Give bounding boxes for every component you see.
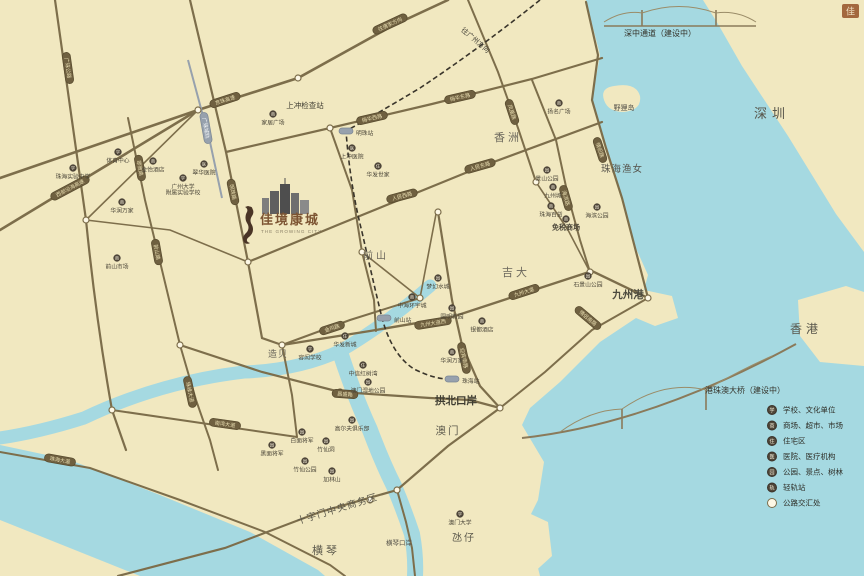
station-pill	[445, 376, 459, 382]
legend-icon-glyph: 园	[769, 470, 774, 476]
area-label: 澳门	[436, 424, 461, 437]
station-pill	[339, 128, 353, 134]
road-junction-marker	[245, 259, 251, 265]
poi-label: 金怡酒店	[141, 166, 164, 174]
area-label: 深圳	[754, 106, 790, 121]
legend-icon-glyph: 住	[769, 438, 774, 445]
poi-label: 家居广场	[261, 119, 284, 127]
poi-label: 中信红树湾	[349, 370, 378, 378]
road-junction-marker	[394, 487, 400, 493]
poi-label: 银都酒店	[470, 326, 493, 334]
poi-icon-glyph: 医	[202, 162, 206, 167]
area-label: 横琴口岸	[386, 538, 413, 547]
road-junction-marker	[497, 405, 503, 411]
road-junction-marker	[195, 107, 201, 113]
area-label: 上冲检查站	[286, 100, 324, 110]
poi-label: 上冲医院	[340, 153, 363, 161]
poi-label: 景山公园	[535, 175, 558, 183]
poi-label: 圆明新园	[440, 313, 463, 321]
poi-label: 竹仙洞	[317, 446, 335, 454]
poi-icon-glyph: 商	[557, 100, 561, 107]
poi-label: 华发世家	[366, 171, 389, 179]
brand-stamp-glyph: 佳	[846, 6, 855, 17]
area-label: 九州港	[611, 288, 644, 301]
poi-label: 高尔夫俱乐部	[335, 425, 370, 433]
road-junction-marker	[83, 217, 89, 223]
area-label: 造贝	[268, 348, 288, 359]
road-junction-marker	[417, 295, 423, 301]
area-label: 港珠澳大桥（建设中）	[705, 385, 785, 395]
poi-icon-glyph: 医	[350, 146, 354, 151]
poi-label: 华发新城	[333, 341, 356, 349]
location-map: 西部沿海高速京珠高速往唐家方向广珠公路明珠路翠微路前山路珠峰大道梅华西路梅华东路…	[0, 0, 864, 576]
poi-label: 容闳学校	[298, 354, 321, 362]
map-canvas: 西部沿海高速京珠高速往唐家方向广珠公路明珠路翠微路前山路珠峰大道梅华西路梅华东路…	[0, 0, 864, 576]
legend-item-label: 公路交汇处	[783, 498, 821, 508]
road-junction-marker	[327, 125, 333, 131]
poi-icon-glyph: 学	[458, 511, 462, 517]
legend-item-label: 医院、医疗机构	[783, 451, 836, 461]
poi-label: 前山市场	[105, 263, 128, 271]
road-junction-marker	[435, 209, 441, 215]
legend-icon-glyph: 医	[769, 455, 774, 461]
poi-label: 九州城	[544, 192, 562, 200]
poi-icon-glyph: 学	[71, 165, 75, 171]
area-label: 香港	[790, 322, 822, 336]
road-junction-marker	[645, 295, 651, 301]
poi-icon-glyph: 商	[115, 255, 119, 262]
legend-item-label: 学校、文化单位	[783, 405, 836, 415]
area-label: 香洲	[494, 131, 522, 144]
poi-icon-glyph: 商	[151, 158, 155, 165]
area-label: 珠海渔女	[601, 163, 643, 175]
poi-label: 梦幻水城	[426, 283, 449, 291]
area-label: 野狸岛	[614, 103, 635, 112]
poi-label: 中海环宇城	[398, 302, 427, 310]
poi-label: 加林山	[323, 476, 341, 484]
poi-icon-glyph: 学	[116, 149, 120, 155]
brand-stamp: 佳	[842, 4, 859, 18]
legend-item-resi: 住住宅区	[768, 436, 806, 446]
station-pill	[377, 315, 391, 321]
poi-icon-glyph: 学	[181, 175, 185, 181]
area-label: 横琴	[312, 543, 340, 557]
poi-label: 珠海百货	[539, 211, 562, 219]
poi-icon-glyph: 商	[120, 199, 124, 206]
poi-icon-glyph: 学	[308, 346, 312, 352]
station-label: 珠海站	[462, 377, 480, 385]
poi-label: 黑面将军	[260, 450, 283, 458]
area-label: 吉大	[502, 265, 530, 279]
poi-label: 竹仙公园	[293, 466, 316, 474]
poi-icon-glyph: 商	[271, 111, 275, 118]
poi-label: 扬名广场	[547, 108, 570, 116]
road-junction-marker	[109, 407, 115, 413]
poi-label-line2: 附属实验学校	[166, 189, 201, 197]
poi-icon-glyph: 商	[480, 318, 484, 325]
poi-label: 广州大学	[171, 183, 194, 191]
poi-label: 石景山公园	[574, 281, 603, 289]
poi-label: 珠海实验中学	[56, 173, 91, 181]
legend-item-label: 公园、景点、树林	[783, 467, 843, 477]
road-junction-marker	[295, 75, 301, 81]
poi-label: 澳门湿地公园	[351, 387, 386, 395]
legend-item-label: 住宅区	[783, 436, 806, 446]
poi-icon-glyph: 商	[450, 349, 454, 356]
area-label: 前山	[363, 249, 389, 262]
poi-label: 翠华医院	[192, 169, 215, 177]
legend-item-label: 商场、超市、市场	[783, 420, 843, 430]
poi-label: 华润万家	[110, 207, 133, 215]
station-label: 明珠站	[356, 129, 374, 137]
area-label: 拱北口岸	[435, 394, 477, 407]
brand-tagline: THE GROWING CITY	[261, 229, 322, 234]
poi-icon-glyph: 商	[549, 203, 553, 210]
legend-icon-glyph: 轨	[769, 485, 774, 492]
poi-label: 白面将军	[290, 437, 313, 445]
road-junction-marker	[279, 342, 285, 348]
legend-icon-glyph: 商	[769, 423, 774, 430]
legend-icon-glyph: 学	[769, 407, 774, 414]
legend-item-label: 轻轨站	[783, 482, 806, 492]
junction-icon	[768, 499, 777, 508]
area-label: 氹仔	[452, 532, 476, 544]
poi-label: 澳门大学	[448, 519, 471, 527]
poi-icon-glyph: 商	[564, 216, 568, 223]
poi-label: 华润万家	[440, 357, 463, 365]
brand-name: 佳境康城	[260, 212, 320, 227]
area-label: 深中通道（建设中）	[624, 28, 696, 38]
poi-label: 体育中心	[106, 157, 129, 165]
poi-label: 免税商场	[552, 223, 580, 232]
poi-icon-glyph: 商	[551, 184, 555, 191]
road-junction-marker	[177, 342, 183, 348]
station-label: 前山站	[394, 316, 412, 324]
poi-icon-glyph: 商	[410, 294, 414, 301]
legend-item-railst: 轨轻轨站	[768, 482, 806, 492]
poi-label: 海滨公园	[585, 212, 608, 220]
